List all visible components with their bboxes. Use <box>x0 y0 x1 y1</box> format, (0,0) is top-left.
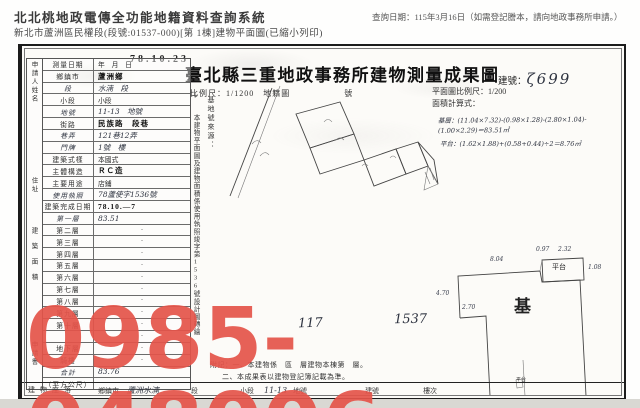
row-label: 主要用途 <box>43 177 94 188</box>
row-value: 蘆洲鄉 <box>94 71 190 82</box>
row-value: 1號 樓 <box>94 142 190 153</box>
table-row: 段 水湳 段 <box>43 83 190 95</box>
dim-platform-small: 0.97 <box>536 246 549 253</box>
row-label: 巷弄 <box>43 130 94 141</box>
building-number-value: ζ699 <box>527 70 572 88</box>
row-value: · <box>94 260 190 271</box>
cadastral-sketch <box>212 84 442 244</box>
row-label: 第五層 <box>43 260 94 271</box>
group-area: 建築面積 <box>28 227 38 289</box>
row-value: 小段 <box>94 94 190 105</box>
row-label: 地號 <box>43 106 94 117</box>
dim-top: 8.04 <box>490 256 503 263</box>
table-row: 測量日期 年 月 日 <box>43 59 190 71</box>
table-row: 使用執照 78蘆使字1536號 <box>43 189 190 201</box>
table-row: 第六層 · <box>43 272 190 284</box>
row-label: 第四層 <box>43 248 94 259</box>
row-value: ＲＣ造 <box>94 165 190 176</box>
row-value: 121巷12弄 <box>94 130 190 141</box>
dim-left: 4.70 <box>436 290 449 297</box>
phone-overlay: 0985-048006 <box>26 297 640 408</box>
table-row: 第一層 83.51 <box>43 213 190 225</box>
row-label: 第二層 <box>43 225 94 236</box>
row-value: 店鋪 <box>94 177 190 188</box>
row-label: 第一層 <box>43 213 94 224</box>
row-value: · <box>94 272 190 283</box>
row-label: 主體構造 <box>43 165 94 176</box>
group-address: 住址 <box>28 177 38 194</box>
document-title: 臺北縣三重地政事務所建物測量成果圖 <box>185 61 500 86</box>
row-label: 鄉鎮市 <box>43 71 94 82</box>
row-value: · <box>94 236 190 247</box>
dim-platform-right: 1.08 <box>588 264 601 271</box>
row-value: 年 月 日 <box>94 59 190 70</box>
table-row: 建築式樣 本國式 <box>43 154 190 166</box>
group-applicant: 申請人姓名 <box>28 61 38 104</box>
row-label: 測量日期 <box>43 59 94 70</box>
row-value: · <box>94 225 190 236</box>
row-label: 第三層 <box>43 236 94 247</box>
table-row: 地號 11-13 地號 <box>43 106 190 118</box>
row-label: 門牌 <box>43 142 94 153</box>
table-row: 鄉鎮市 蘆洲鄉 <box>43 71 190 83</box>
query-date: 查詢日期：115年3月16日（如需登記謄本，請向地政事務所申請。） <box>372 11 622 23</box>
row-label: 小段 <box>43 94 94 105</box>
row-label: 第六層 <box>43 272 94 283</box>
table-row: 巷弄 121巷12弄 <box>43 130 190 142</box>
table-row: 建築完成日期 78.10.—7 <box>43 201 190 213</box>
row-value: 11-13 地號 <box>94 106 190 117</box>
table-row: 第五層 · <box>43 260 190 272</box>
table-row: 第四層 · <box>43 248 190 260</box>
row-value: 78.10.—7 <box>94 201 190 212</box>
row-value: 78蘆使字1536號 <box>94 189 190 200</box>
north-cross-mark: + <box>192 90 198 102</box>
row-label: 建築式樣 <box>43 154 94 165</box>
table-row: 主體構造 ＲＣ造 <box>43 165 190 177</box>
table-row: 第二層 · <box>43 225 190 237</box>
row-value: 民族路 段巷 <box>94 118 190 129</box>
building-number: 建號：ζ699 <box>498 70 571 88</box>
area-formula-platform: 平台：(1.62×1.88)+(0.58+0.44)÷2＝8.76㎡ <box>440 138 625 148</box>
table-row: 第三層 · <box>43 236 190 248</box>
table-row: 門牌 1號 樓 <box>43 142 190 154</box>
row-label: 段 <box>43 83 94 94</box>
row-value: 83.51 <box>94 213 190 224</box>
scanned-query-page: 北北桃地政電傳全功能地籍資料查詢系統 新北市蘆洲區民權段(段號:01537-00… <box>0 0 640 408</box>
table-row: 小段 小段 <box>43 94 190 106</box>
area-formula-base: 基層：(11.04×7.32)-(0.98×1.28)-(2.80×1.04)-… <box>438 115 623 136</box>
row-value: 本國式 <box>94 154 190 165</box>
row-label: 街路 <box>43 118 94 129</box>
row-value: 水湳 段 <box>94 83 190 94</box>
dim-platform-top: 2.32 <box>558 246 571 253</box>
row-label: 使用執照 <box>43 189 94 200</box>
system-title: 北北桃地政電傳全功能地籍資料查詢系統 <box>14 7 266 26</box>
row-value: · <box>94 248 190 259</box>
row-label: 建築完成日期 <box>43 201 94 212</box>
document-subtitle: 新北市蘆洲區民權段(段號:01537-000)[第 1棟]建物平面圖(已縮小列印… <box>14 25 323 39</box>
platform-label: 平台 <box>552 262 566 272</box>
plan-scale: 平面圖比例尺：1/200 <box>432 86 506 97</box>
table-row: 街路 民族路 段巷 <box>43 118 190 130</box>
table-row: 主要用途 店鋪 <box>43 177 190 189</box>
